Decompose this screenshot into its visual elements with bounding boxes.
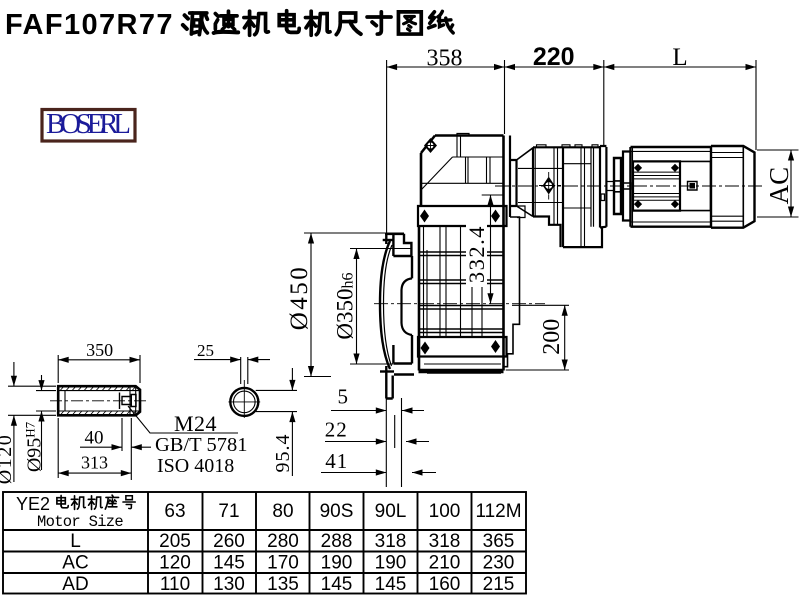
- svg-text:260: 260: [213, 531, 245, 552]
- svg-text:288: 288: [321, 531, 353, 552]
- svg-text:205: 205: [159, 531, 191, 552]
- svg-text:FAF107R77: FAF107R77: [5, 9, 174, 41]
- svg-text:AC: AC: [764, 167, 794, 205]
- svg-text:AD: AD: [62, 574, 88, 595]
- svg-text:71: 71: [218, 501, 239, 522]
- svg-text:200: 200: [539, 319, 565, 355]
- svg-text:145: 145: [321, 574, 353, 595]
- svg-text:365: 365: [483, 531, 515, 552]
- svg-text:ISO 4018: ISO 4018: [157, 455, 234, 477]
- svg-text:318: 318: [375, 531, 407, 552]
- svg-text:L: L: [70, 531, 81, 552]
- svg-text:BOSERL: BOSERL: [46, 108, 131, 140]
- svg-text:41: 41: [325, 449, 348, 473]
- svg-text:100: 100: [429, 501, 461, 522]
- svg-text:145: 145: [375, 574, 407, 595]
- svg-text:130: 130: [213, 574, 245, 595]
- svg-text:Motor Size: Motor Size: [37, 513, 123, 531]
- svg-text:190: 190: [321, 553, 353, 574]
- svg-text:230: 230: [483, 553, 515, 574]
- svg-text:40: 40: [85, 428, 104, 449]
- svg-text:63: 63: [164, 501, 185, 522]
- svg-text:80: 80: [272, 501, 293, 522]
- svg-text:313: 313: [81, 453, 108, 473]
- svg-text:358: 358: [427, 46, 463, 72]
- svg-text:135: 135: [267, 574, 299, 595]
- svg-text:145: 145: [213, 553, 245, 574]
- svg-text:318: 318: [429, 531, 461, 552]
- svg-text:YE2: YE2: [16, 494, 50, 514]
- svg-text:25: 25: [197, 341, 214, 360]
- svg-text:170: 170: [267, 553, 299, 574]
- svg-text:350: 350: [86, 340, 113, 360]
- svg-text:215: 215: [483, 574, 515, 595]
- svg-text:112M: 112M: [475, 501, 521, 522]
- svg-text:Ø450: Ø450: [286, 265, 313, 331]
- svg-text:220: 220: [533, 43, 575, 71]
- svg-text:110: 110: [160, 574, 190, 595]
- svg-text:GB/T 5781: GB/T 5781: [155, 434, 247, 456]
- svg-text:90S: 90S: [320, 501, 354, 522]
- svg-text:L: L: [672, 44, 687, 71]
- svg-text:M24: M24: [174, 411, 217, 436]
- svg-text:Ø120: Ø120: [0, 434, 16, 484]
- svg-text:95.4: 95.4: [272, 434, 294, 473]
- svg-text:160: 160: [429, 574, 461, 595]
- svg-text:22: 22: [325, 417, 348, 441]
- svg-text:AC: AC: [62, 553, 88, 574]
- svg-text:210: 210: [429, 553, 461, 574]
- svg-text:280: 280: [267, 531, 299, 552]
- svg-text:5: 5: [337, 385, 348, 409]
- svg-text:332.4: 332.4: [464, 225, 489, 283]
- svg-text:120: 120: [159, 553, 191, 574]
- svg-text:190: 190: [375, 553, 407, 574]
- svg-text:90L: 90L: [375, 501, 407, 522]
